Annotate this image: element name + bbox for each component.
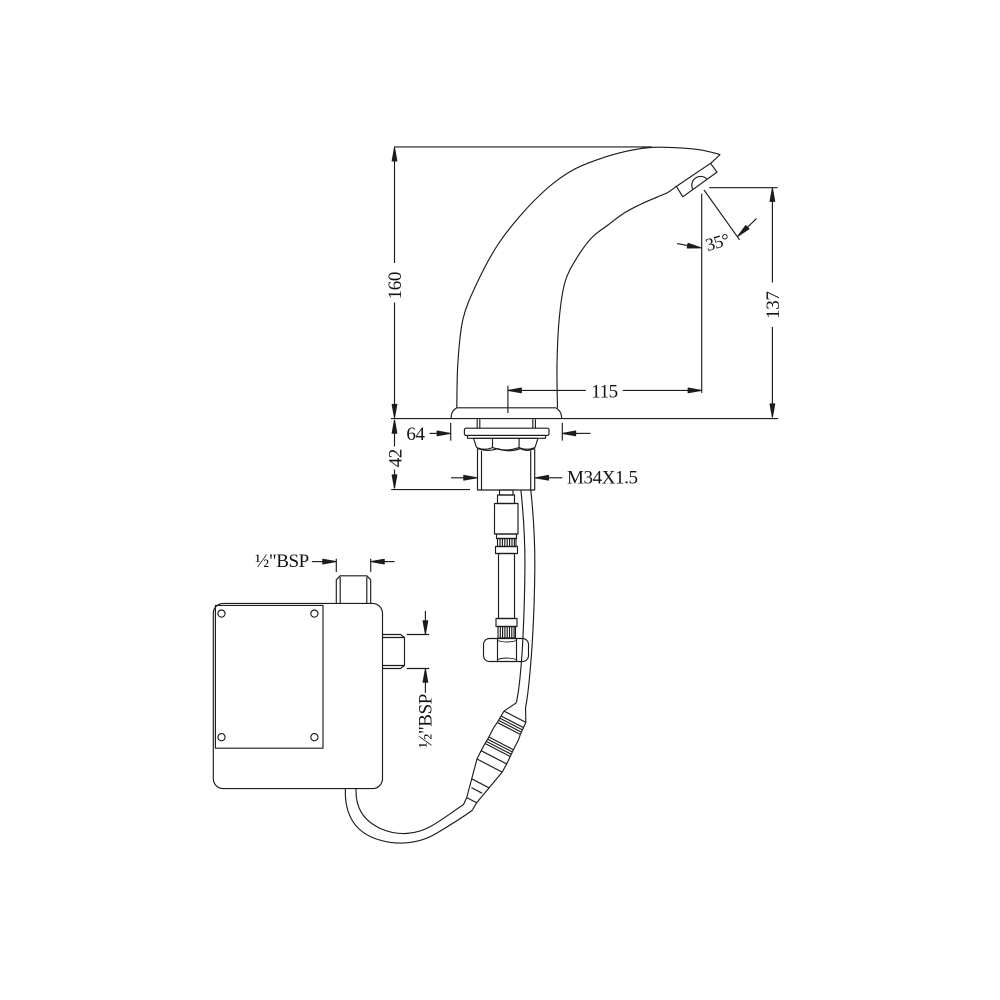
svg-text:115: 115 (591, 381, 618, 402)
svg-text:42: 42 (386, 449, 407, 467)
svg-text:M34X1.5: M34X1.5 (567, 468, 638, 489)
svg-text:137: 137 (763, 292, 784, 319)
svg-text:64: 64 (406, 424, 425, 445)
svg-text:35°: 35° (703, 229, 732, 255)
svg-text:½"BSP: ½"BSP (416, 694, 437, 748)
svg-text:160: 160 (385, 272, 406, 299)
svg-text:½"BSP: ½"BSP (255, 551, 309, 572)
